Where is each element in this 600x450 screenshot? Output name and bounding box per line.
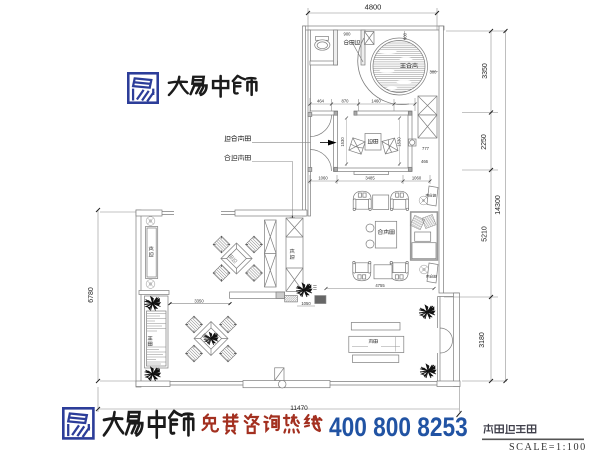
svg-text:464: 464 xyxy=(317,99,325,104)
svg-text:3485: 3485 xyxy=(365,176,375,181)
svg-text:1460: 1460 xyxy=(371,99,381,104)
svg-text:1060: 1060 xyxy=(318,176,328,181)
svg-text:3350: 3350 xyxy=(482,63,489,79)
svg-text:5210: 5210 xyxy=(482,226,489,242)
svg-text:870: 870 xyxy=(342,99,350,104)
svg-text:600: 600 xyxy=(403,32,408,40)
svg-text:400 800 8253: 400 800 8253 xyxy=(329,412,468,442)
svg-text:1530: 1530 xyxy=(340,137,345,147)
svg-text:1060: 1060 xyxy=(412,176,422,181)
svg-text:777: 777 xyxy=(422,146,430,151)
svg-text:2250: 2250 xyxy=(481,134,488,150)
svg-text:3180: 3180 xyxy=(479,332,486,348)
svg-text:466: 466 xyxy=(421,159,429,164)
svg-text:4800: 4800 xyxy=(365,3,382,12)
svg-text:14300: 14300 xyxy=(495,195,502,215)
svg-text:3350: 3350 xyxy=(194,299,204,304)
svg-text:6780: 6780 xyxy=(88,287,95,303)
svg-text:SCALE=1:100: SCALE=1:100 xyxy=(509,442,587,450)
svg-text:11470: 11470 xyxy=(290,405,308,412)
svg-text:900: 900 xyxy=(344,32,352,37)
svg-text:1530: 1530 xyxy=(397,137,402,147)
svg-text:1050: 1050 xyxy=(301,301,311,306)
svg-text:300: 300 xyxy=(430,70,438,75)
svg-text:4755: 4755 xyxy=(375,283,385,288)
